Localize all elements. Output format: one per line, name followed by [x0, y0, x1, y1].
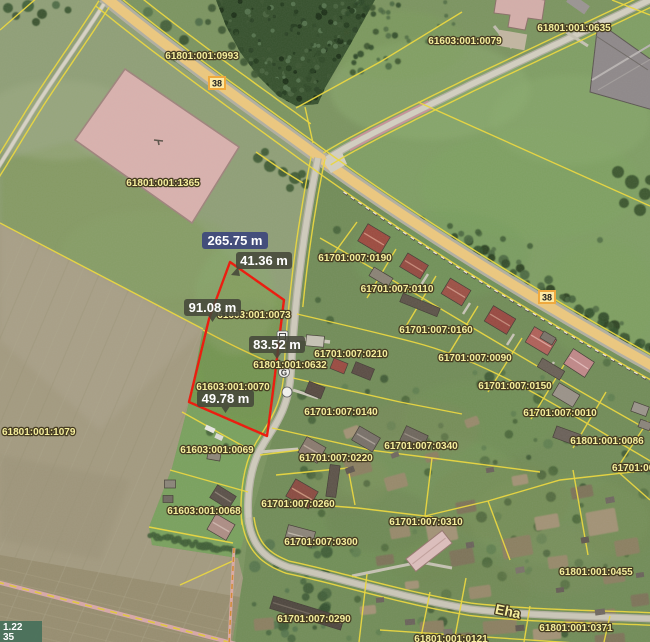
svg-text:38: 38	[212, 79, 222, 89]
svg-text:49.78 m: 49.78 m	[202, 391, 250, 406]
svg-text:61701:00: 61701:00	[612, 463, 650, 474]
svg-text:61701:007:0340: 61701:007:0340	[384, 441, 458, 452]
svg-text:61701:007:0190: 61701:007:0190	[318, 253, 392, 264]
svg-text:61801:001:0635: 61801:001:0635	[537, 23, 611, 34]
svg-text:61801:001:0632: 61801:001:0632	[253, 360, 327, 371]
svg-text:61701:007:0300: 61701:007:0300	[284, 537, 358, 548]
svg-text:61801:001:1365: 61801:001:1365	[126, 178, 200, 189]
svg-text:61701:007:0310: 61701:007:0310	[389, 517, 463, 528]
svg-text:61801:001:0371: 61801:001:0371	[539, 623, 613, 634]
svg-text:61701:007:0010: 61701:007:0010	[523, 408, 597, 419]
svg-text:91.08 m: 91.08 m	[189, 300, 237, 315]
svg-text:61603:001:0068: 61603:001:0068	[167, 506, 241, 517]
svg-text:38: 38	[542, 293, 552, 303]
svg-text:61701:007:0150: 61701:007:0150	[478, 381, 552, 392]
svg-text:61701:007:0110: 61701:007:0110	[361, 284, 434, 295]
svg-text:35: 35	[3, 632, 15, 642]
svg-text:41.36 m: 41.36 m	[240, 253, 288, 268]
svg-text:61603:001:0069: 61603:001:0069	[180, 445, 254, 456]
svg-text:61801:001:0993: 61801:001:0993	[165, 51, 239, 62]
svg-text:61701:007:0260: 61701:007:0260	[261, 499, 335, 510]
svg-text:61801:001:1079: 61801:001:1079	[2, 427, 76, 438]
svg-text:61701:007:0210: 61701:007:0210	[314, 349, 388, 360]
svg-text:61701:007:0290: 61701:007:0290	[277, 614, 351, 625]
svg-text:61701:007:0160: 61701:007:0160	[399, 325, 473, 336]
svg-text:61801:001:0086: 61801:001:0086	[570, 436, 644, 447]
svg-text:61801:001:0121: 61801:001:0121	[414, 634, 488, 642]
svg-text:61801:001:0455: 61801:001:0455	[559, 567, 633, 578]
svg-text:61701:007:0140: 61701:007:0140	[304, 407, 378, 418]
svg-text:265.75 m: 265.75 m	[208, 233, 263, 248]
svg-text:61701:007:0090: 61701:007:0090	[438, 353, 512, 364]
svg-text:61701:007:0220: 61701:007:0220	[299, 453, 373, 464]
svg-text:83.52 m: 83.52 m	[253, 337, 301, 352]
svg-text:61603:001:0079: 61603:001:0079	[428, 36, 502, 47]
